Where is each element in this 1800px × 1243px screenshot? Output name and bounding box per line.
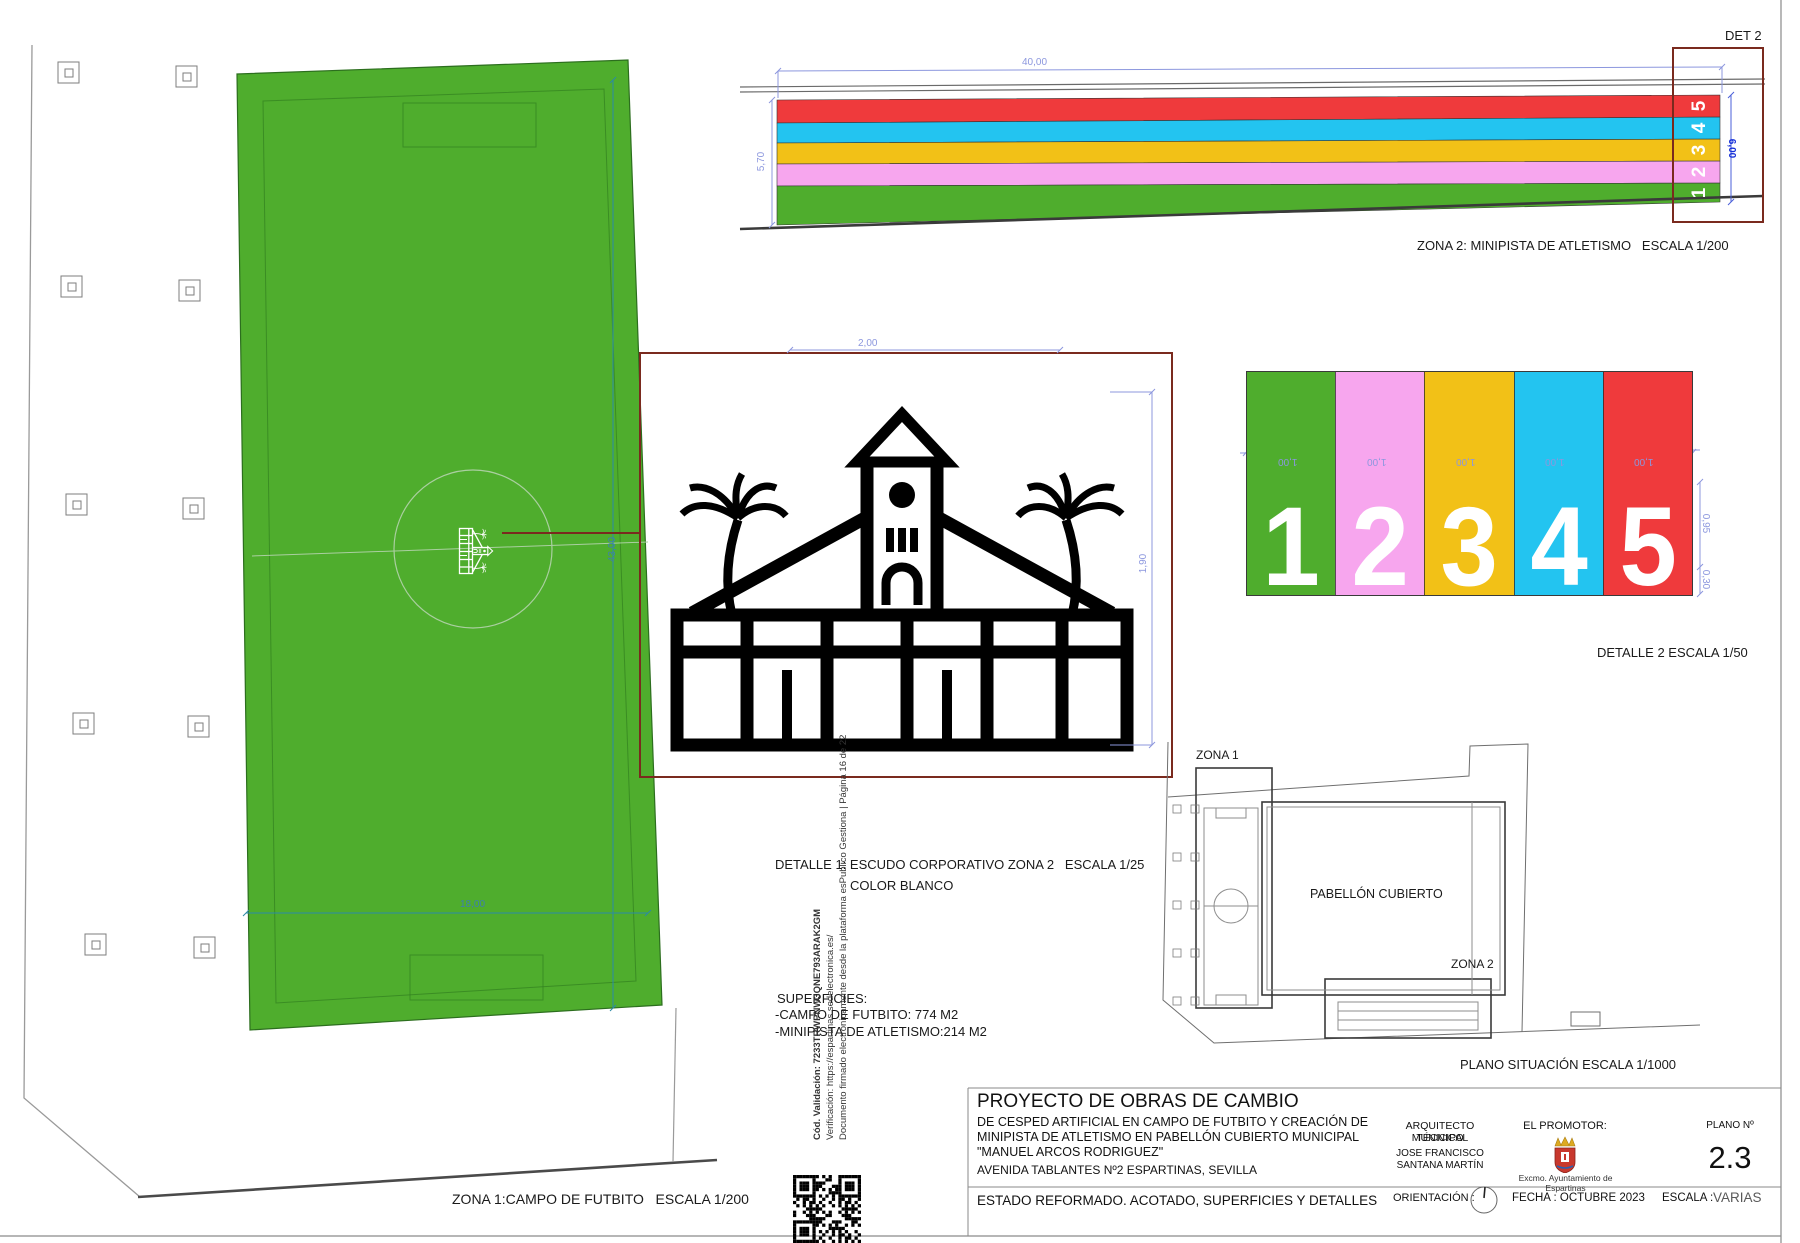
zona1-caption: ZONA 1:CAMPO DE FUTBITO ESCALA 1/200: [452, 1192, 749, 1207]
strip-dim-length: 40,00: [1022, 57, 1047, 68]
detalle1-dim-h: 1,90: [1138, 554, 1149, 573]
detalle2-caption: DETALLE 2 ESCALA 1/50: [1597, 646, 1748, 660]
lane-dim-1: 1,00: [1278, 456, 1297, 467]
lane-5: 5: [1603, 372, 1692, 595]
lane-3-number: 3: [1441, 499, 1498, 595]
signature-platform-note: Documento firmado electrónicamente desde…: [838, 578, 851, 1140]
lane-2-number: 2: [1352, 499, 1409, 595]
detalle2-dim-b: 0,30: [1700, 570, 1711, 589]
strip-dim-left: 5,70: [756, 152, 767, 171]
signature-verification-url: Verificación: https://espartinas.sedelec…: [825, 578, 838, 1140]
plano-number: 2.3: [1680, 1140, 1780, 1176]
field-dim-width: 18,00: [460, 899, 485, 910]
futbito-field: [237, 60, 662, 1030]
situacion-zona2-tag: ZONA 2: [1451, 958, 1494, 971]
promoter-label: EL PROMOTOR:: [1510, 1120, 1620, 1132]
zona1-outline: [1196, 768, 1272, 1008]
athletics-strip: [740, 48, 1765, 229]
situacion-caption: PLANO SITUACIÓN ESCALA 1/1000: [1460, 1058, 1676, 1072]
lane-5-number: 5: [1619, 499, 1676, 595]
detalle2-lanes: 1 2 3 4 5: [1246, 371, 1693, 596]
architect-role-2: MUNICIPAL: [1385, 1132, 1495, 1144]
lane-4: 4: [1514, 372, 1603, 595]
sheet-name: ESTADO REFORMADO. ACOTADO, SUPERFICIES Y…: [977, 1193, 1377, 1208]
strip-lane-5: 5: [1689, 94, 1711, 118]
signature-strip: Cód. Validación: 7233TRWPNW3QNE793ARAK2G…: [812, 578, 850, 1140]
detalle2-dim-a: 0,95: [1700, 514, 1711, 533]
lane-1: 1: [1247, 372, 1335, 595]
qr-code: [793, 1175, 861, 1243]
lane-4-number: 4: [1530, 499, 1587, 595]
escala-label: ESCALA :: [1662, 1192, 1713, 1204]
lane-dim-2: 1,00: [1367, 456, 1386, 467]
plano-label: PLANO Nº: [1680, 1120, 1780, 1131]
orientation-label: ORIENTACIÓN :: [1393, 1192, 1475, 1204]
detalle1-caption-2: COLOR BLANCO: [850, 879, 953, 893]
project-line-1: DE CESPED ARTIFICIAL EN CAMPO DE FUTBITO…: [977, 1115, 1368, 1129]
zona2-caption: ZONA 2: MINIPISTA DE ATLETISMO ESCALA 1/…: [1417, 239, 1729, 253]
escudo-corporativo: [677, 414, 1127, 745]
escala-value: VARIAS: [1713, 1190, 1762, 1205]
espartinas-crest: [1551, 1135, 1579, 1173]
detalle1-box: [640, 347, 1172, 777]
superficies-item-1: -CAMPO DE FUTBITO: 774 M2: [775, 1008, 958, 1022]
strip-lane-1: 1: [1689, 181, 1711, 205]
lane-1-number: 1: [1262, 499, 1319, 595]
lane-2: 2: [1335, 372, 1424, 595]
project-line-3: "MANUEL ARCOS RODRIGUEZ": [977, 1145, 1163, 1159]
project-address: AVENIDA TABLANTES Nº2 ESPARTINAS, SEVILL…: [977, 1163, 1257, 1177]
project-title: PROYECTO DE OBRAS DE CAMBIO: [977, 1091, 1299, 1113]
strip-lane-4: 4: [1689, 116, 1711, 140]
zona2-outline: [1325, 979, 1491, 1038]
lane-dim-3: 1,00: [1456, 456, 1475, 467]
detalle1-dim-w: 2,00: [858, 338, 877, 349]
lane-3: 3: [1424, 372, 1513, 595]
fecha-label: FECHA : OCTUBRE 2023: [1512, 1192, 1645, 1204]
drawing-sheet: DET 2 40,00 5,70 6,00 5 4 3 2 1 ZONA 2: …: [0, 0, 1800, 1243]
strip-dim-right: 6,00: [1726, 139, 1737, 158]
superficies-item-2: -MINIPISTA DE ATLETISMO:214 M2: [775, 1025, 987, 1039]
promoter-name: Excmo. Ayuntamiento de Espartinas: [1498, 1173, 1633, 1193]
project-line-2: MINIPISTA DE ATLETISMO EN PABELLÓN CUBIE…: [977, 1130, 1359, 1144]
strip-lane-3: 3: [1689, 138, 1711, 162]
situacion-zona1-tag: ZONA 1: [1196, 749, 1239, 762]
orientation-compass: [1468, 1184, 1500, 1216]
architect-name-2: SANTANA MARTÍN: [1385, 1160, 1495, 1171]
lane-dim-5: 1,00: [1634, 456, 1653, 467]
field-dim-height: 43,00: [607, 537, 618, 562]
column-markers: [58, 62, 215, 958]
signature-validation-code: Cód. Validación: 7233TRWPNW3QNE793ARAK2G…: [812, 578, 825, 1140]
architect-name-1: JOSE FRANCISCO: [1385, 1148, 1495, 1159]
pabellon-label: PABELLÓN CUBIERTO: [1310, 888, 1443, 902]
det2-tag: DET 2: [1725, 29, 1762, 43]
lane-dim-4: 1,00: [1545, 456, 1564, 467]
